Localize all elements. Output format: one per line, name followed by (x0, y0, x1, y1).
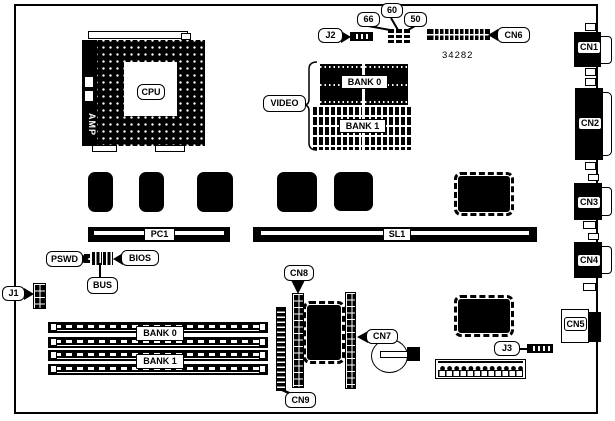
edge-stub (585, 23, 596, 31)
speed-jumper-60 (396, 29, 402, 43)
ic-chip (277, 172, 317, 212)
speed-jumper-50 (404, 29, 410, 43)
simm-clip (50, 351, 57, 359)
cn9-header (276, 307, 286, 391)
simm-clip (50, 323, 57, 331)
battery-clip (380, 351, 410, 358)
ic-chip (197, 172, 233, 212)
edge-stub (588, 233, 599, 240)
cpu-lever-notch (181, 33, 191, 40)
cn1-label: CN1 (577, 41, 601, 54)
qfp-chip (307, 305, 341, 360)
power-connector-sockets (438, 370, 523, 377)
pc1-label: PC1 (144, 228, 175, 241)
edge-stub (585, 162, 596, 170)
cn3-label: CN3 (577, 196, 601, 209)
cpu-socket-foot (92, 145, 117, 152)
cn2-label: CN2 (578, 117, 602, 130)
j1-label: J1 (2, 286, 25, 301)
sl1-label: SL1 (383, 228, 411, 241)
qfp-chip (458, 299, 510, 333)
cpu-socket-foot (155, 145, 185, 152)
j2-connector (350, 32, 373, 41)
cpu-socket-brand-label: AMP (82, 104, 97, 144)
simm-bank0-label: BANK 0 (136, 326, 184, 341)
edge-stub (588, 174, 599, 181)
cn8-header (292, 293, 304, 388)
cn8-label: CN8 (284, 265, 314, 281)
j1-header (33, 283, 46, 309)
cpu-label: CPU (137, 84, 165, 100)
simm-clip (259, 351, 266, 359)
battery-clip-end (407, 347, 420, 361)
cpu-sidebar-slot (84, 76, 94, 88)
j2-label: J2 (318, 28, 343, 43)
video-label: VIDEO (263, 95, 306, 112)
bios-jumper (92, 252, 102, 265)
edge-stub (585, 68, 596, 76)
cn9-label: CN9 (285, 392, 316, 408)
edge-stub (585, 78, 596, 86)
cpu-speed-50-label: 50 (404, 12, 427, 27)
cn4-label: CN4 (577, 254, 601, 267)
qfp-chip (458, 176, 510, 212)
simm-clip (50, 338, 57, 346)
simm-clip (259, 323, 266, 331)
cn6-label: CN6 (497, 27, 530, 43)
simm-clip (259, 365, 266, 373)
part-number: 34282 (442, 50, 473, 61)
edge-stub (583, 221, 596, 229)
cpu-speed-66-label: 66 (357, 12, 380, 27)
simm-clip (50, 365, 57, 373)
ic-chip (334, 172, 373, 211)
simm-clip (259, 338, 266, 346)
cn7-header (345, 292, 356, 389)
cn7-label: CN7 (366, 329, 398, 344)
bios-label: BIOS (121, 250, 159, 266)
pswd-jumper (84, 254, 90, 265)
cpu-speed-60-label: 60 (381, 3, 403, 18)
ic-chip (88, 172, 113, 212)
speed-jumper-66 (388, 29, 394, 43)
pswd-label: PSWD (46, 251, 83, 267)
j3-connector (527, 344, 553, 353)
video-bank0-label: BANK 0 (341, 75, 388, 89)
cn5-label: CN5 (564, 317, 587, 331)
cpu-socket-lever (88, 31, 188, 39)
edge-stub (583, 283, 596, 291)
ic-chip (139, 172, 164, 212)
power-connector-pins (438, 361, 523, 370)
video-bank1-label: BANK 1 (339, 119, 386, 133)
j3-label: J3 (494, 341, 520, 356)
cpu-sidebar-slot (84, 90, 94, 102)
motherboard-diagram: AMP CPU J2 66 60 50 CN6 34282 CN1 CN2 CN… (0, 0, 615, 421)
cn6-connector (427, 29, 490, 40)
simm-bank1-label: BANK 1 (136, 354, 184, 369)
bus-label: BUS (87, 277, 118, 294)
cn5-connector (588, 312, 601, 342)
bus-jumper (103, 252, 113, 265)
